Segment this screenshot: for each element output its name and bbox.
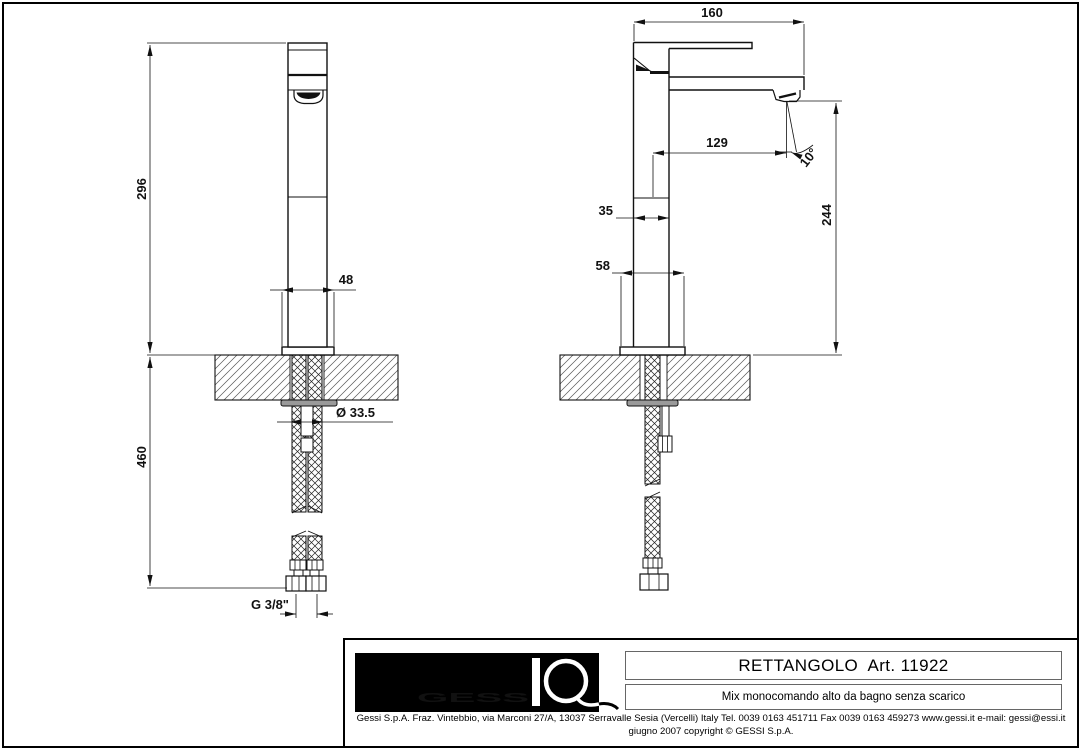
drawing-sheet: 296 460 48 Ø 33.5	[0, 0, 1081, 750]
dimension-depth-160: 160	[634, 5, 804, 75]
dimension-height-296: 296	[134, 43, 286, 355]
gessi-logo-i-bar	[532, 658, 540, 706]
svg-text:58: 58	[596, 258, 610, 273]
gessi-logo-letters: GESS	[417, 690, 530, 705]
spout	[669, 77, 804, 90]
water-stream	[776, 102, 797, 158]
side-view: 160 129 10° 244	[560, 5, 842, 590]
product-description-box: Mix monocomando alto da bagno senza scar…	[625, 684, 1062, 710]
svg-text:35: 35	[599, 203, 613, 218]
product-description: Mix monocomando alto da bagno senza scar…	[722, 691, 966, 703]
copyright-line: giugno 2007 copyright © GESSI S.p.A.	[345, 726, 1077, 737]
lever-handle	[634, 43, 753, 49]
svg-text:48: 48	[339, 272, 353, 287]
svg-text:460: 460	[134, 446, 149, 468]
product-title-box: RETTANGOLO Art. 11922	[625, 651, 1062, 680]
title-block: GESS RETTANGOLO Art. 11922 Mix monocoman…	[343, 638, 1077, 746]
dimension-base-58: 58	[596, 258, 684, 346]
faucet-body-front	[282, 43, 334, 355]
faucet-body-side	[620, 43, 804, 356]
svg-text:160: 160	[701, 5, 723, 20]
company-info: Gessi S.p.A. Fraz. Vintebbio, via Marcon…	[345, 713, 1077, 724]
svg-text:129: 129	[706, 135, 728, 150]
front-view: 296 460 48 Ø 33.5	[134, 43, 398, 618]
gessi-logo: GESS	[355, 653, 625, 715]
product-title: RETTANGOLO Art. 11922	[738, 656, 948, 676]
svg-text:296: 296	[134, 178, 149, 200]
svg-text:Ø 33.5: Ø 33.5	[336, 405, 375, 420]
fixing-flange-front	[281, 400, 337, 406]
fixing-flange-side	[627, 400, 678, 406]
svg-text:10°: 10°	[797, 145, 821, 170]
svg-text:G 3/8": G 3/8"	[251, 597, 289, 612]
dimension-reach-129: 129	[653, 135, 786, 197]
svg-text:244: 244	[819, 203, 834, 225]
supply-hoses-front	[286, 355, 326, 591]
dimension-spout-height-244: 244	[753, 101, 842, 355]
dimension-thread: G 3/8"	[251, 594, 333, 618]
